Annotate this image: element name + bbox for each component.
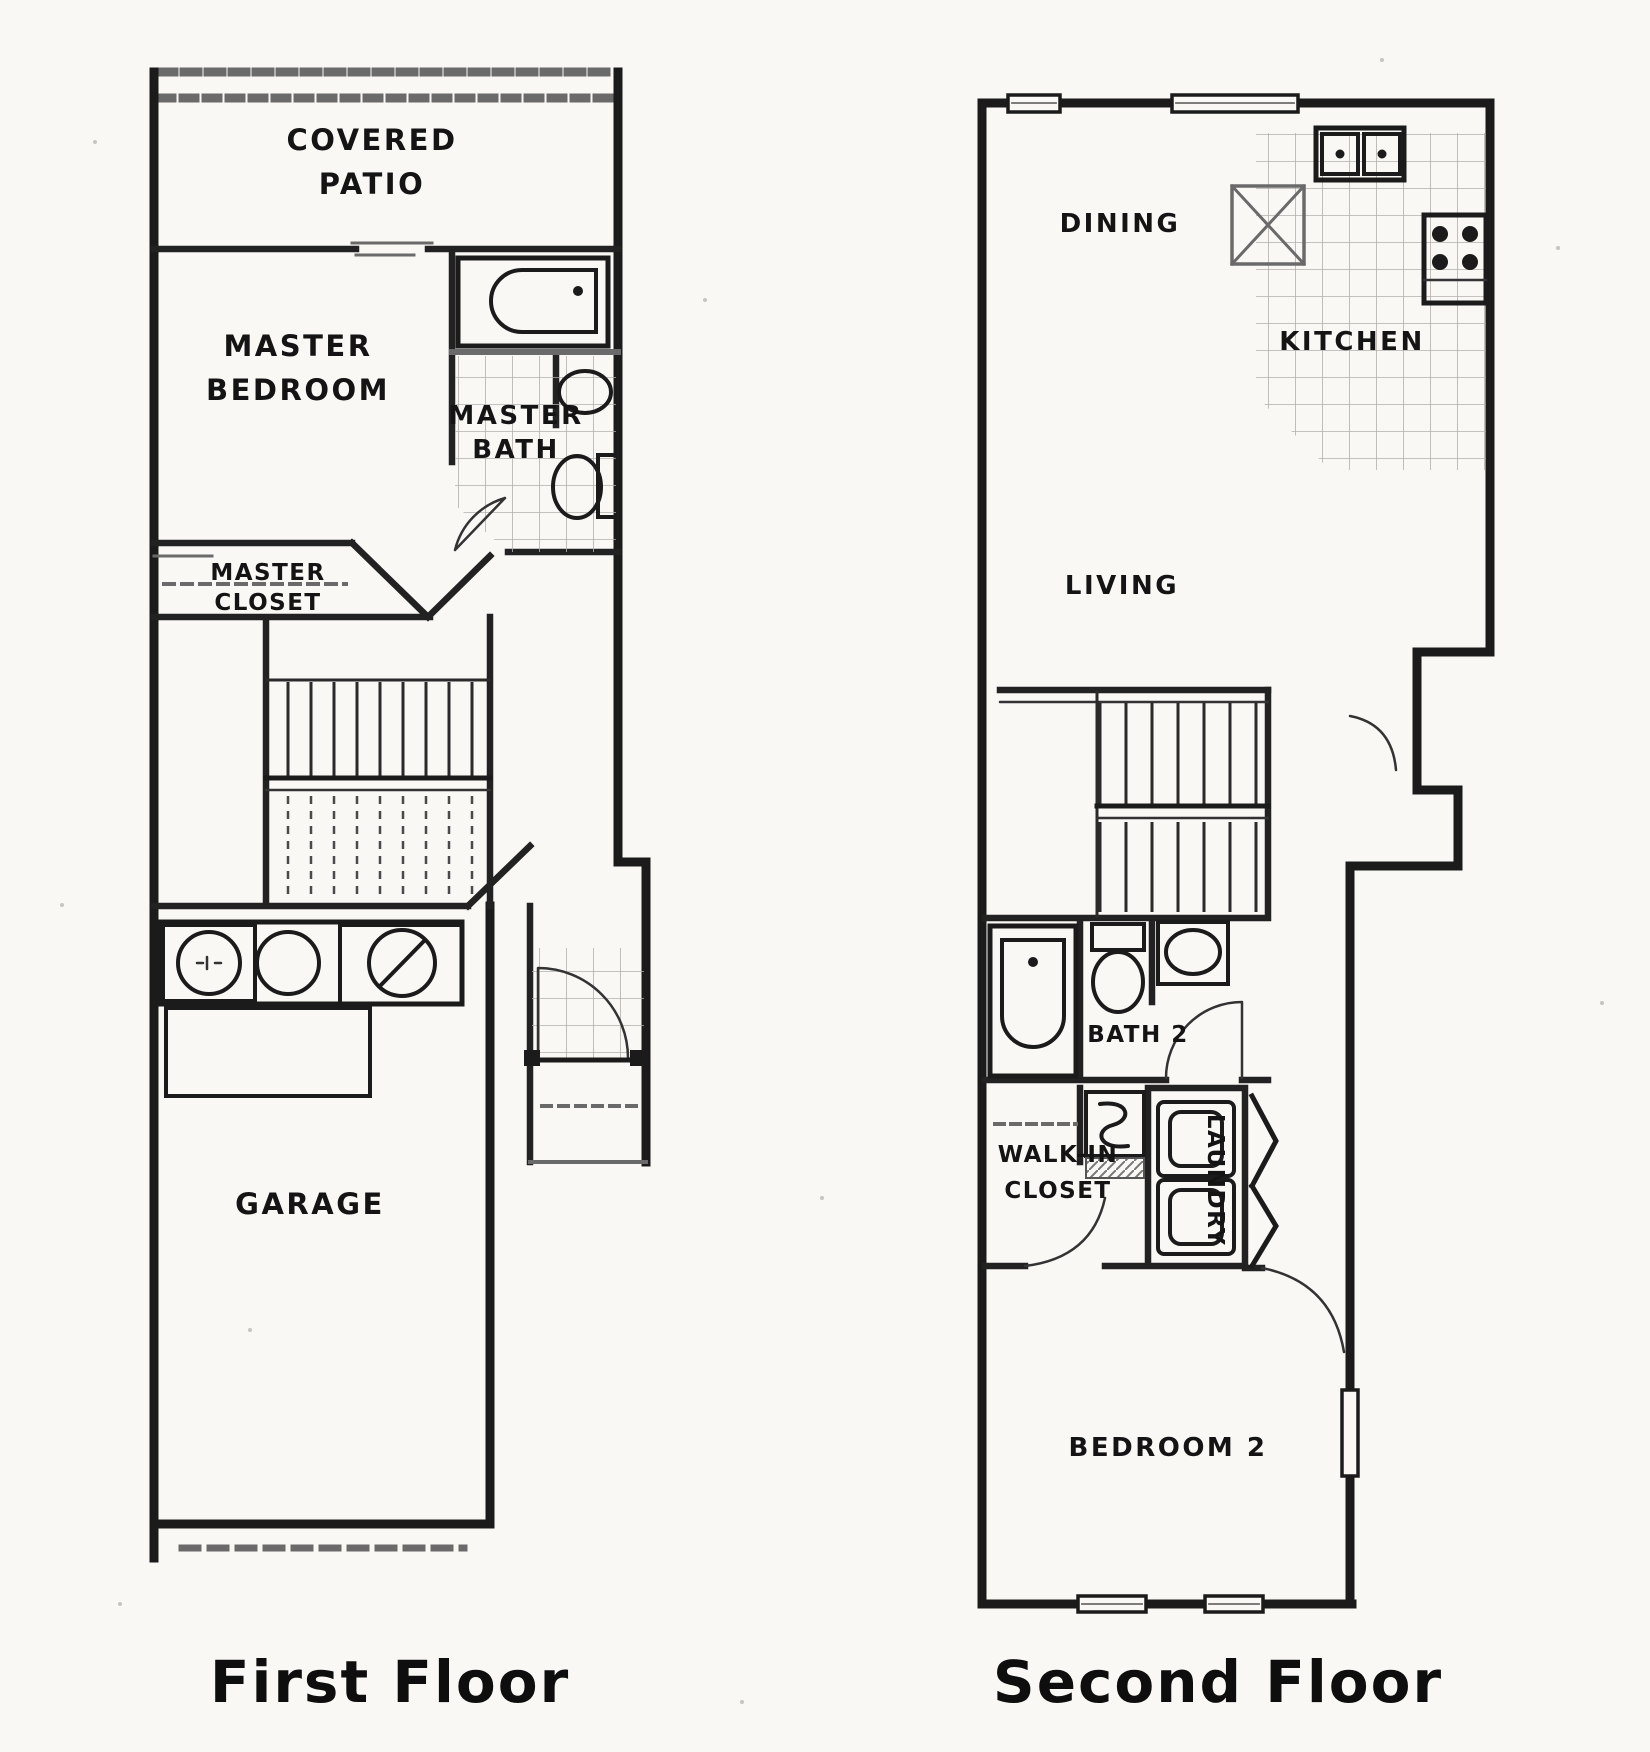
label-master-bedroom-1: MASTER <box>223 329 372 363</box>
sliding-door-icon <box>352 243 432 255</box>
label-living: LIVING <box>1065 571 1179 601</box>
bath-2-fixtures <box>990 922 1242 1078</box>
porch-post <box>630 1050 646 1066</box>
first-floor-title: First Floor <box>210 1648 570 1716</box>
kitchen-area <box>1232 128 1486 470</box>
bathtub-basin <box>491 270 596 332</box>
label-covered-patio-1: COVERED <box>286 123 457 157</box>
closet-door-arc-icon <box>1025 1198 1105 1266</box>
garage-step <box>166 1008 370 1096</box>
tub-drain-dot <box>1028 957 1038 967</box>
nook-door-arc-icon <box>1350 716 1396 770</box>
stairs-second-floor <box>1000 690 1268 918</box>
washer-icon <box>257 932 319 994</box>
sink-icon <box>1166 930 1220 974</box>
label-garage: GARAGE <box>235 1187 385 1221</box>
label-master-bath-1: MASTER <box>448 401 583 431</box>
window-icon <box>1342 1390 1358 1476</box>
first-floor-plan: COVERED PATIO MASTER BEDROOM MASTER BATH… <box>154 72 646 1716</box>
floor-plan-sheet: COVERED PATIO MASTER BEDROOM MASTER BATH… <box>0 0 1650 1752</box>
label-covered-patio-2: PATIO <box>319 167 426 201</box>
patio-railing-hatch-icon <box>160 72 616 98</box>
floor-plan-drawing: COVERED PATIO MASTER BEDROOM MASTER BATH… <box>0 0 1650 1752</box>
label-master-closet-1: MASTER <box>210 560 325 586</box>
label-kitchen: KITCHEN <box>1279 327 1424 357</box>
toilet-tank <box>1092 924 1144 950</box>
label-bedroom-2: BEDROOM 2 <box>1069 1433 1268 1463</box>
stairs-first-floor <box>266 680 490 900</box>
label-master-bath-2: BATH <box>472 435 559 465</box>
porch-post <box>524 1050 540 1066</box>
entry-porch <box>524 948 646 1162</box>
water-heater-icon <box>178 932 240 994</box>
label-laundry: LAUNDRY <box>1202 1114 1228 1246</box>
label-master-closet-2: CLOSET <box>214 590 321 616</box>
label-dining: DINING <box>1060 209 1181 239</box>
label-walk-in-closet-1: WALK-IN <box>998 1142 1118 1168</box>
toilet-icon <box>1093 952 1143 1012</box>
bedroom-door-arc-icon <box>1262 1268 1344 1352</box>
label-walk-in-closet-2: CLOSET <box>1004 1178 1111 1204</box>
second-floor-plan: DINING KITCHEN LIVING BATH 2 WALK-IN CLO… <box>982 95 1490 1716</box>
label-master-bedroom-2: BEDROOM <box>206 373 390 407</box>
bifold-door-icon <box>1252 1096 1276 1266</box>
label-bath-2: BATH 2 <box>1087 1022 1189 1048</box>
tub-drain-dot <box>573 286 583 296</box>
bathtub-basin <box>1002 940 1064 1047</box>
utility-appliances <box>160 922 462 1096</box>
exterior-wall <box>154 72 646 1558</box>
second-floor-title: Second Floor <box>993 1648 1443 1716</box>
